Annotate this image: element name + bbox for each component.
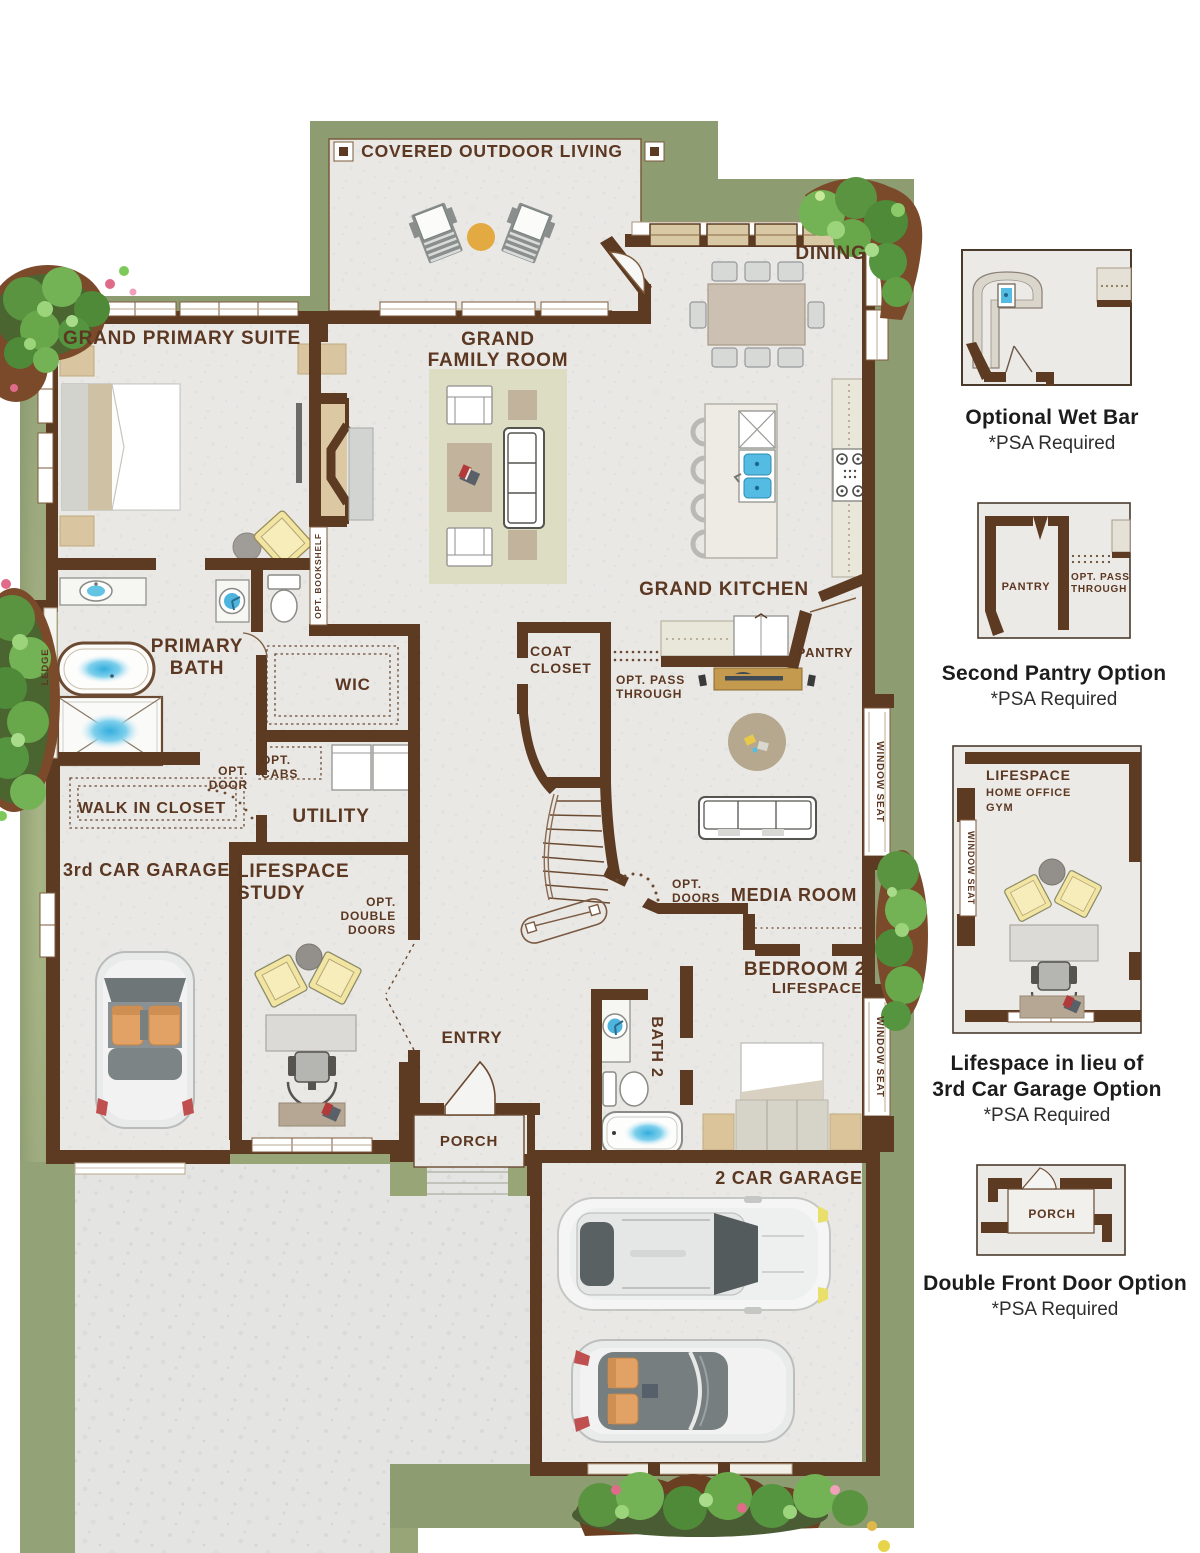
svg-text:WINDOW SEAT: WINDOW SEAT — [874, 741, 885, 822]
svg-text:DOORS: DOORS — [672, 891, 720, 905]
svg-text:LEDGE: LEDGE — [40, 649, 51, 686]
svg-text:UTILITY: UTILITY — [292, 806, 369, 827]
svg-text:OPT. PASS: OPT. PASS — [616, 673, 685, 687]
svg-text:PORCH: PORCH — [1028, 1207, 1075, 1221]
svg-text:GRAND: GRAND — [461, 329, 535, 350]
svg-text:3rd Car Garage Option: 3rd Car Garage Option — [932, 1078, 1161, 1101]
svg-text:OPT.: OPT. — [366, 895, 396, 909]
svg-text:LIFESPACE: LIFESPACE — [986, 767, 1071, 783]
svg-text:COAT: COAT — [530, 643, 572, 659]
svg-text:LIFESPACE: LIFESPACE — [237, 861, 349, 882]
svg-text:OPT. BOOKSHELF: OPT. BOOKSHELF — [313, 533, 323, 619]
svg-text:GYM: GYM — [986, 802, 1013, 814]
svg-text:OPT.: OPT. — [218, 764, 248, 778]
svg-text:PORCH: PORCH — [440, 1133, 498, 1150]
svg-text:PRIMARY: PRIMARY — [151, 636, 244, 657]
svg-text:*PSA Required: *PSA Required — [984, 1105, 1111, 1126]
svg-text:DOUBLE: DOUBLE — [341, 909, 396, 923]
svg-text:OPT.: OPT. — [672, 877, 702, 891]
svg-text:2 CAR GARAGE: 2 CAR GARAGE — [715, 1168, 863, 1188]
svg-text:MEDIA ROOM: MEDIA ROOM — [731, 885, 857, 905]
svg-text:WALK IN CLOSET: WALK IN CLOSET — [78, 800, 226, 817]
svg-text:PANTRY: PANTRY — [797, 645, 854, 660]
svg-text:BATH 2: BATH 2 — [648, 1016, 665, 1077]
svg-text:THROUGH: THROUGH — [1071, 584, 1127, 595]
svg-text:OPT.: OPT. — [261, 753, 291, 767]
svg-text:WIC: WIC — [335, 675, 370, 694]
svg-text:*PSA Required: *PSA Required — [989, 433, 1116, 454]
svg-text:WINDOW SEAT: WINDOW SEAT — [874, 1016, 885, 1097]
svg-text:*PSA Required: *PSA Required — [991, 689, 1118, 710]
svg-text:Double Front Door Option: Double Front Door Option — [923, 1272, 1187, 1295]
svg-text:STUDY: STUDY — [237, 883, 305, 904]
svg-text:DOORS: DOORS — [348, 923, 396, 937]
svg-text:BATH: BATH — [170, 658, 225, 679]
svg-text:OPT. PASS: OPT. PASS — [1071, 572, 1130, 583]
svg-text:LIFESPACE: LIFESPACE — [772, 980, 862, 997]
svg-text:GRAND PRIMARY SUITE: GRAND PRIMARY SUITE — [63, 328, 301, 349]
svg-text:3rd CAR GARAGE: 3rd CAR GARAGE — [63, 860, 230, 880]
svg-text:COVERED OUTDOOR LIVING: COVERED OUTDOOR LIVING — [361, 141, 623, 161]
svg-text:Optional Wet Bar: Optional Wet Bar — [965, 406, 1138, 429]
svg-text:GRAND KITCHEN: GRAND KITCHEN — [639, 579, 809, 600]
svg-text:DOOR: DOOR — [209, 778, 248, 792]
svg-text:WINDOW SEAT: WINDOW SEAT — [966, 831, 976, 905]
svg-text:FAMILY ROOM: FAMILY ROOM — [428, 350, 569, 371]
svg-text:Lifespace in lieu of: Lifespace in lieu of — [950, 1052, 1144, 1075]
svg-text:THROUGH: THROUGH — [616, 687, 682, 701]
svg-text:BEDROOM 2: BEDROOM 2 — [744, 959, 866, 980]
svg-text:PANTRY: PANTRY — [1002, 581, 1051, 593]
svg-text:Second Pantry Option: Second Pantry Option — [942, 662, 1167, 685]
svg-text:CLOSET: CLOSET — [530, 660, 592, 676]
svg-text:HOME OFFICE: HOME OFFICE — [986, 787, 1071, 799]
svg-text:ENTRY: ENTRY — [442, 1028, 503, 1047]
svg-text:CABS: CABS — [261, 767, 298, 781]
svg-text:DINING: DINING — [795, 243, 866, 264]
svg-text:*PSA Required: *PSA Required — [992, 1299, 1119, 1320]
